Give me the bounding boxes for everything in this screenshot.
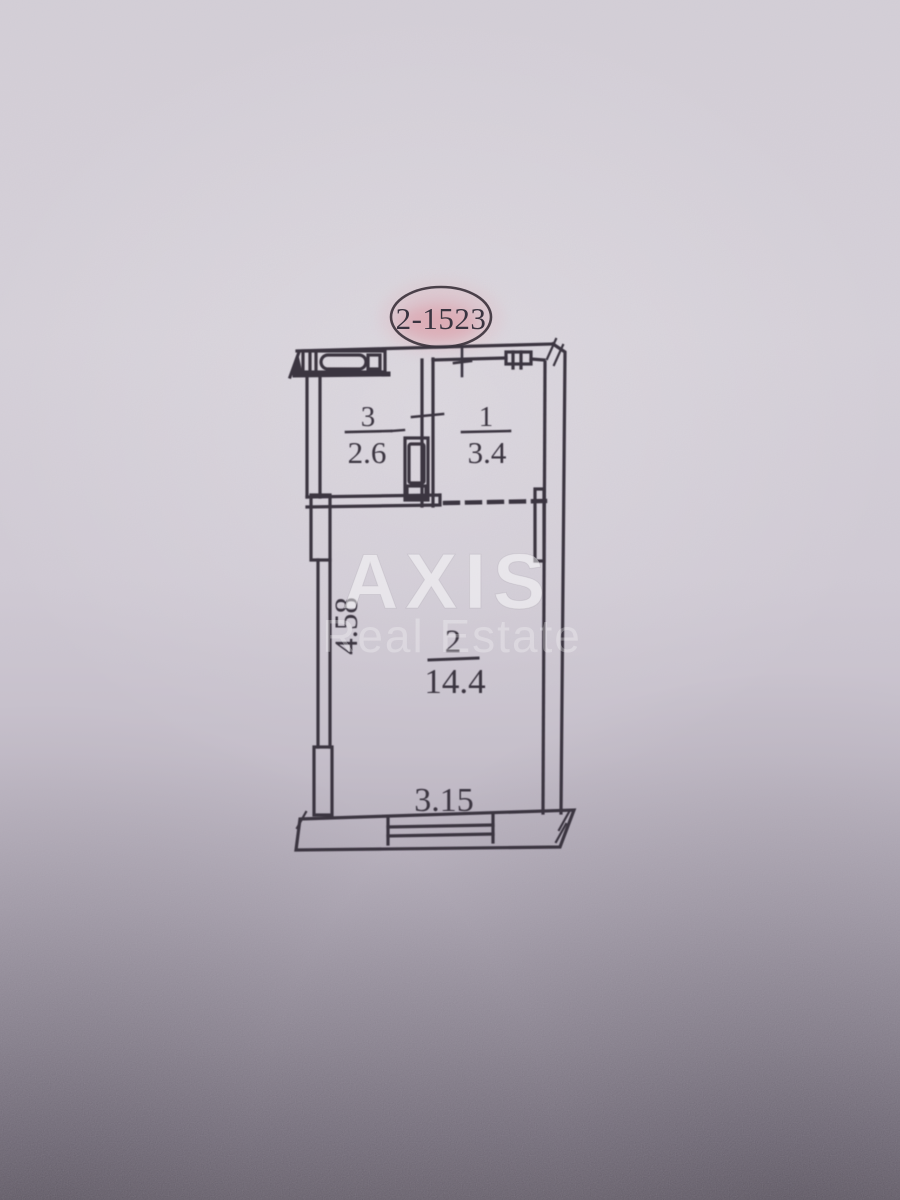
floorplan-photo: 2-1523 (0, 0, 900, 1200)
floorplan-drawing: 2-1523 (0, 0, 900, 1200)
room3-number: 3 (361, 401, 376, 433)
room3-area: 2.6 (348, 435, 387, 470)
watermark-subtitle: Real Estate (322, 610, 582, 662)
room1-number: 1 (479, 401, 494, 433)
unit-label: 2-1523 (396, 301, 487, 336)
dimension-bottom-width: 3.15 (414, 782, 474, 819)
watermark: AXIS Real Estate (322, 537, 582, 662)
room1-area: 3.4 (468, 435, 507, 470)
room2-area: 14.4 (424, 662, 485, 701)
